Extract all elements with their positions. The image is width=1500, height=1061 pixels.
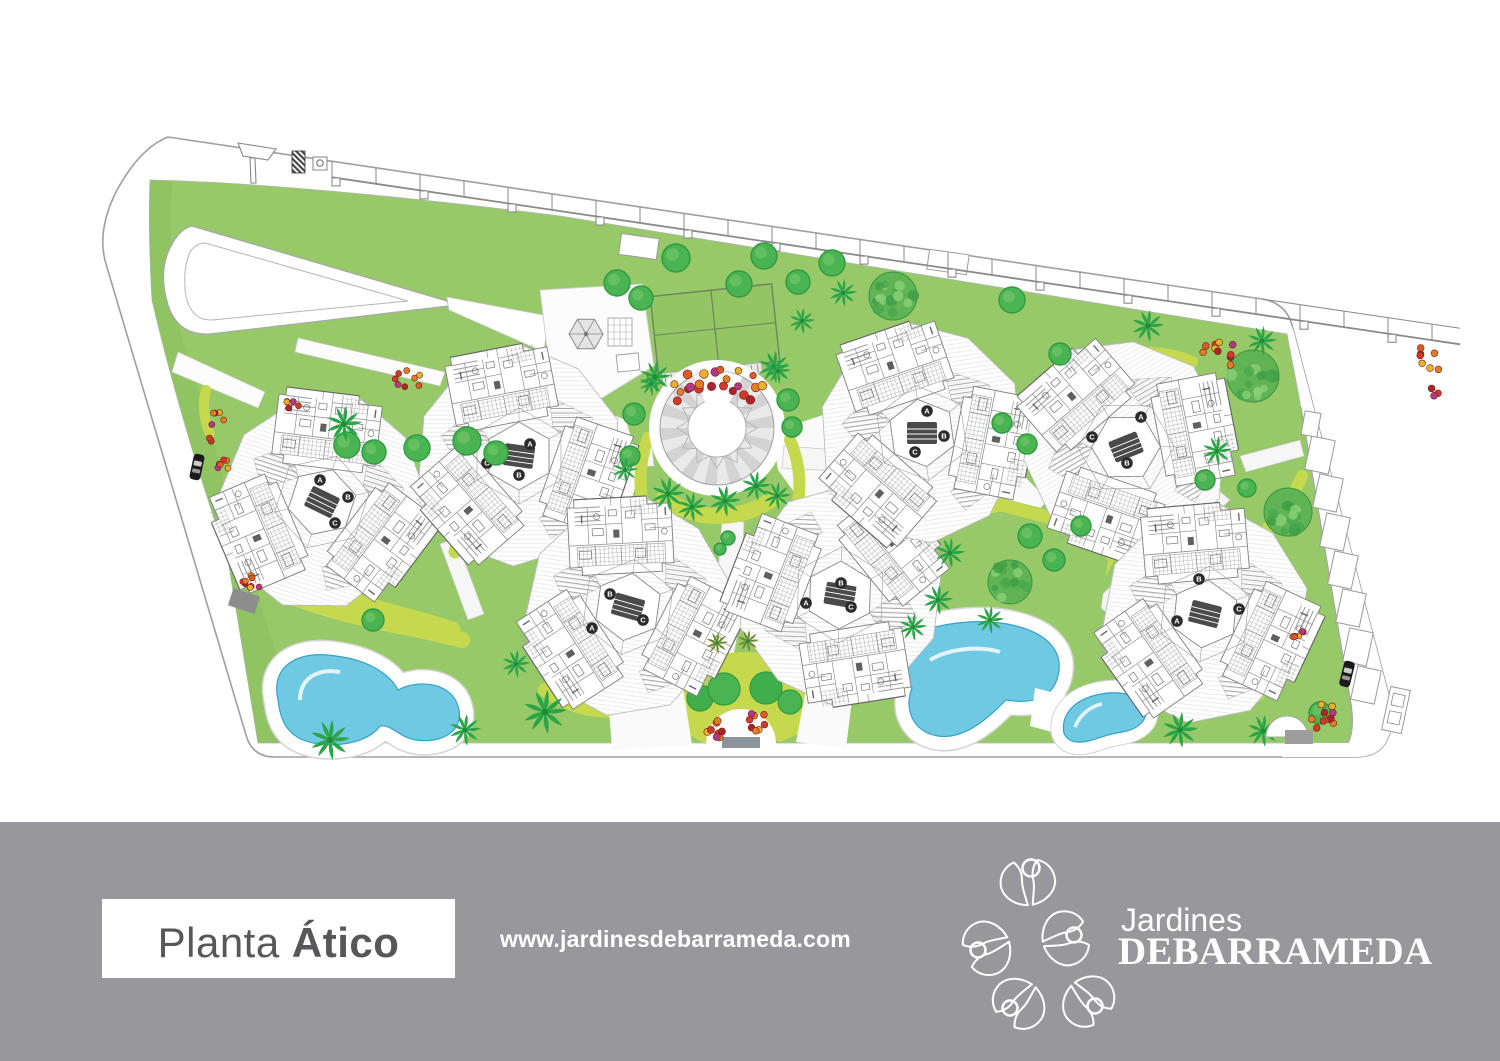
svg-text:B: B xyxy=(941,432,947,441)
svg-text:B: B xyxy=(516,471,522,480)
svg-text:C: C xyxy=(848,603,854,612)
svg-text:B: B xyxy=(607,590,613,599)
svg-text:B: B xyxy=(1124,459,1130,468)
svg-text:A: A xyxy=(589,624,595,633)
svg-text:A: A xyxy=(803,599,809,608)
svg-text:A: A xyxy=(924,407,930,416)
svg-text:C: C xyxy=(912,448,918,457)
svg-text:A: A xyxy=(527,440,533,449)
svg-text:C: C xyxy=(1236,605,1242,614)
svg-text:C: C xyxy=(332,519,338,528)
svg-text:A: A xyxy=(1174,617,1180,626)
svg-text:C: C xyxy=(1089,433,1095,442)
svg-text:B: B xyxy=(345,493,351,502)
svg-text:A: A xyxy=(1138,413,1144,422)
svg-text:A: A xyxy=(317,476,323,485)
svg-text:B: B xyxy=(838,579,844,588)
svg-text:B: B xyxy=(1196,575,1202,584)
svg-text:C: C xyxy=(640,616,646,625)
